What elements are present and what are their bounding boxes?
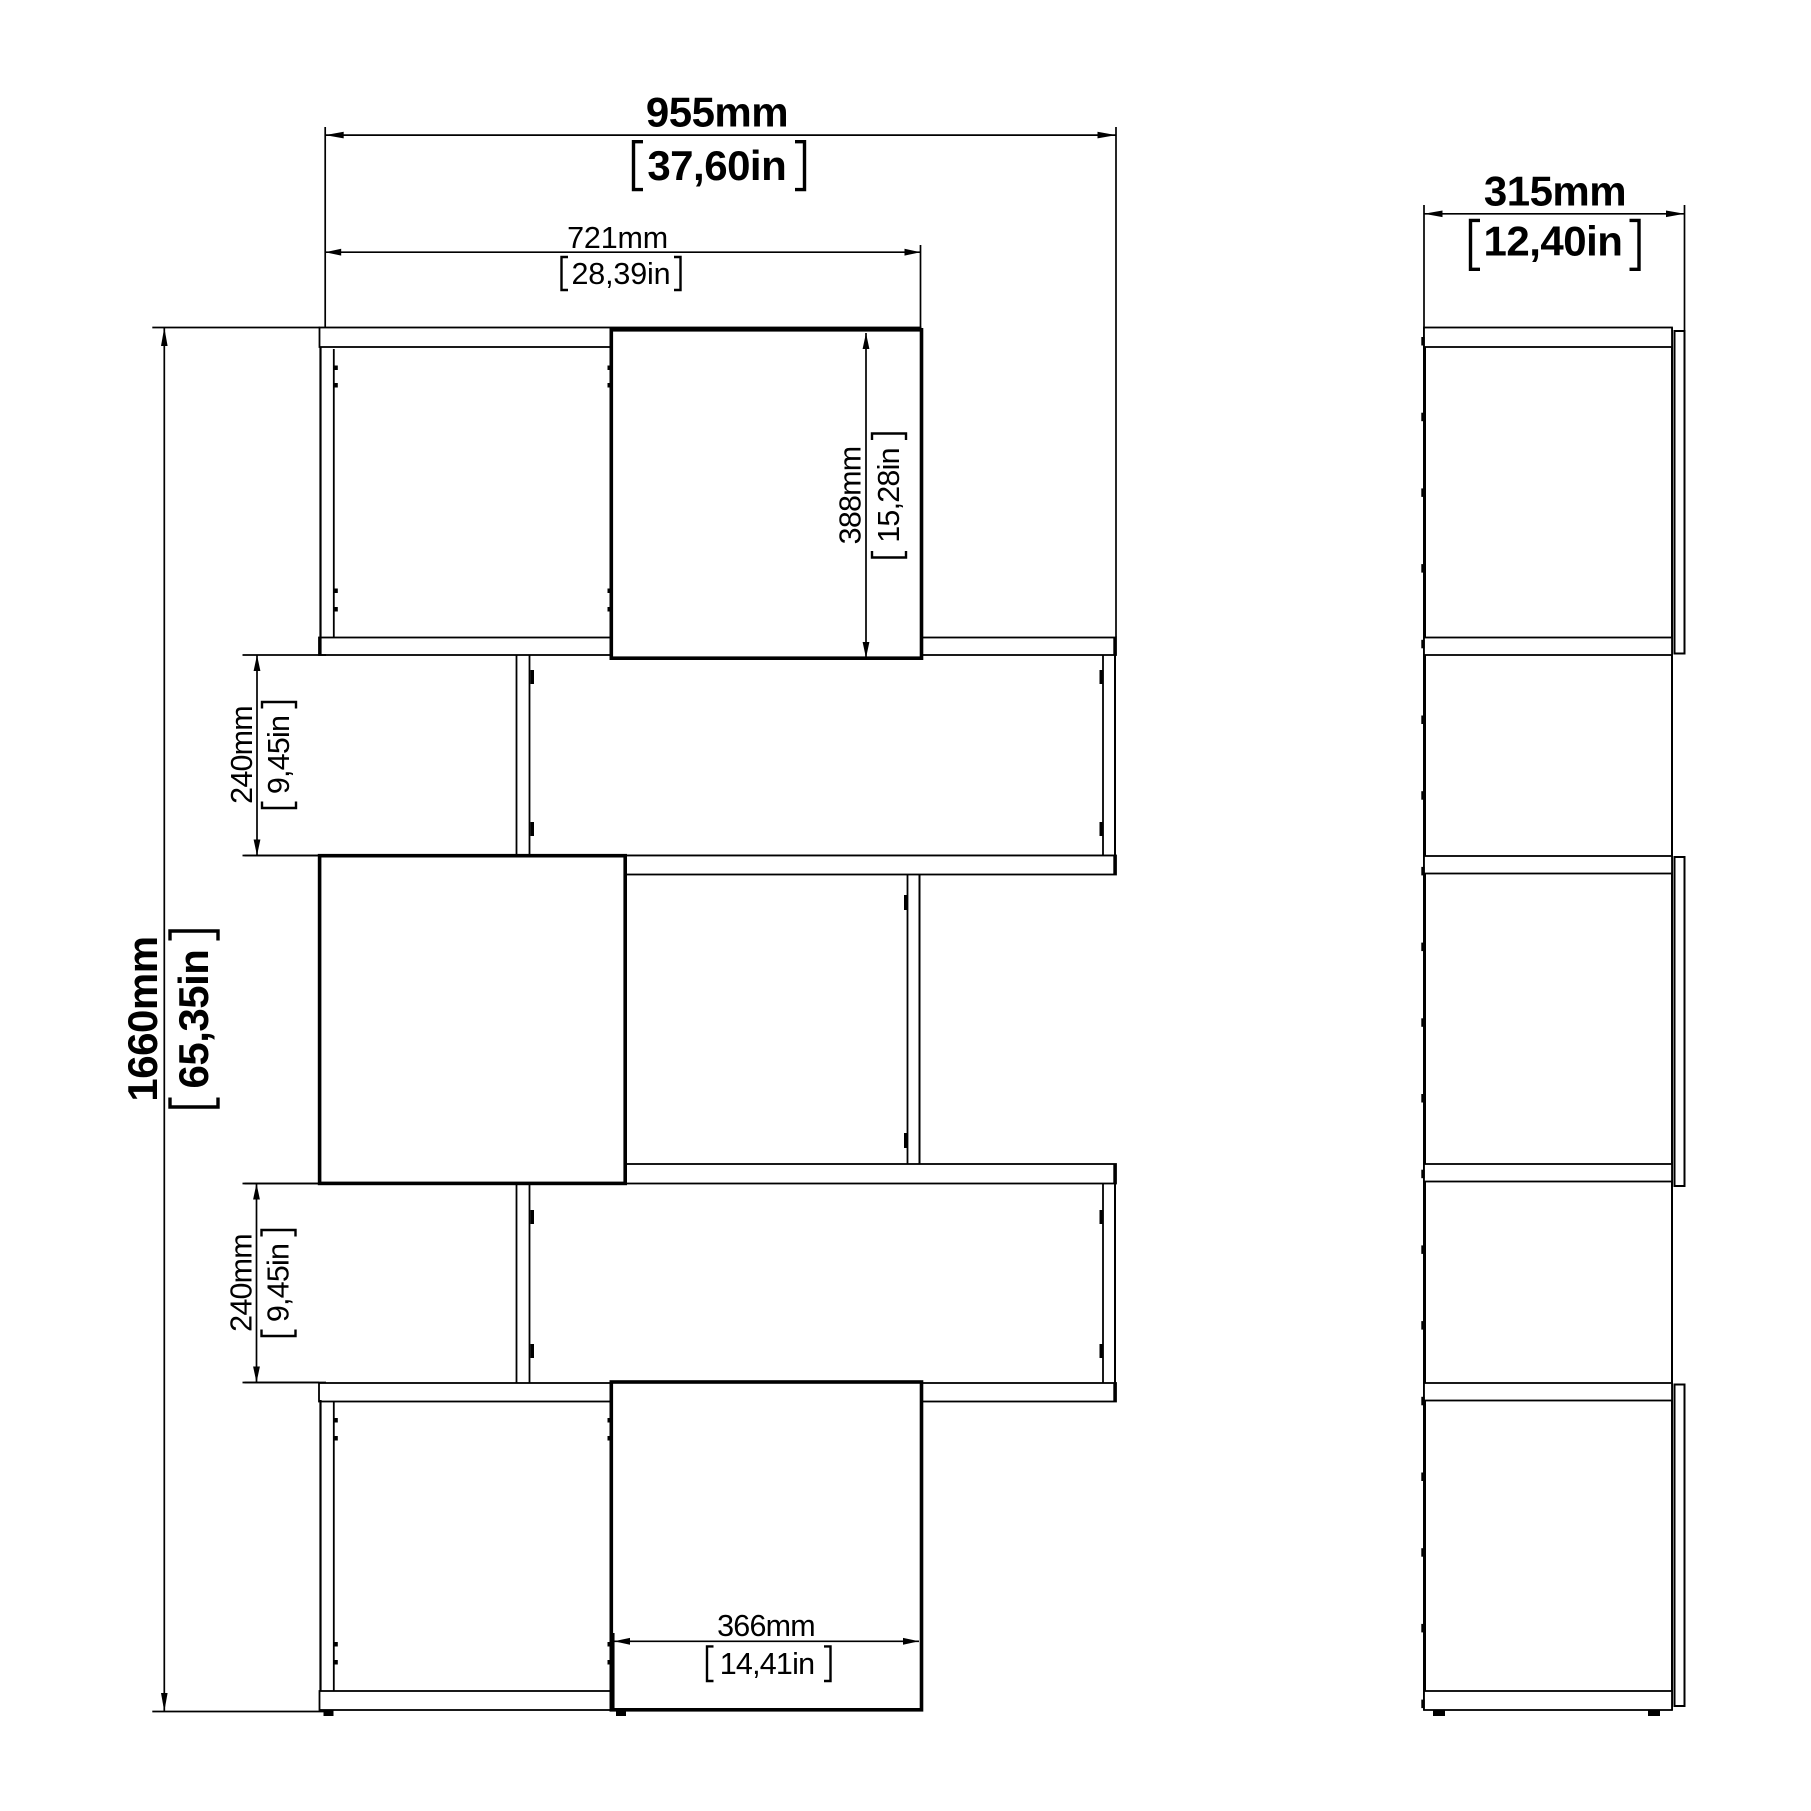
svg-text:955mm: 955mm [646, 89, 788, 136]
svg-text:28,39in: 28,39in [571, 257, 670, 291]
svg-text:9,45in: 9,45in [262, 1244, 296, 1322]
svg-text:315mm: 315mm [1484, 168, 1626, 215]
svg-text:240mm: 240mm [225, 706, 259, 804]
svg-text:721mm: 721mm [567, 221, 668, 255]
svg-text:9,45in: 9,45in [262, 716, 296, 794]
svg-text:65,35in: 65,35in [170, 950, 217, 1089]
svg-text:1660mm: 1660mm [119, 936, 166, 1101]
svg-text:366mm: 366mm [717, 1609, 815, 1643]
svg-text:240mm: 240mm [225, 1234, 259, 1332]
svg-text:37,60in: 37,60in [647, 142, 786, 189]
svg-text:14,41in: 14,41in [720, 1647, 814, 1681]
svg-text:388mm: 388mm [834, 447, 868, 545]
svg-text:12,40in: 12,40in [1484, 217, 1623, 264]
svg-text:15,28in: 15,28in [872, 448, 906, 542]
